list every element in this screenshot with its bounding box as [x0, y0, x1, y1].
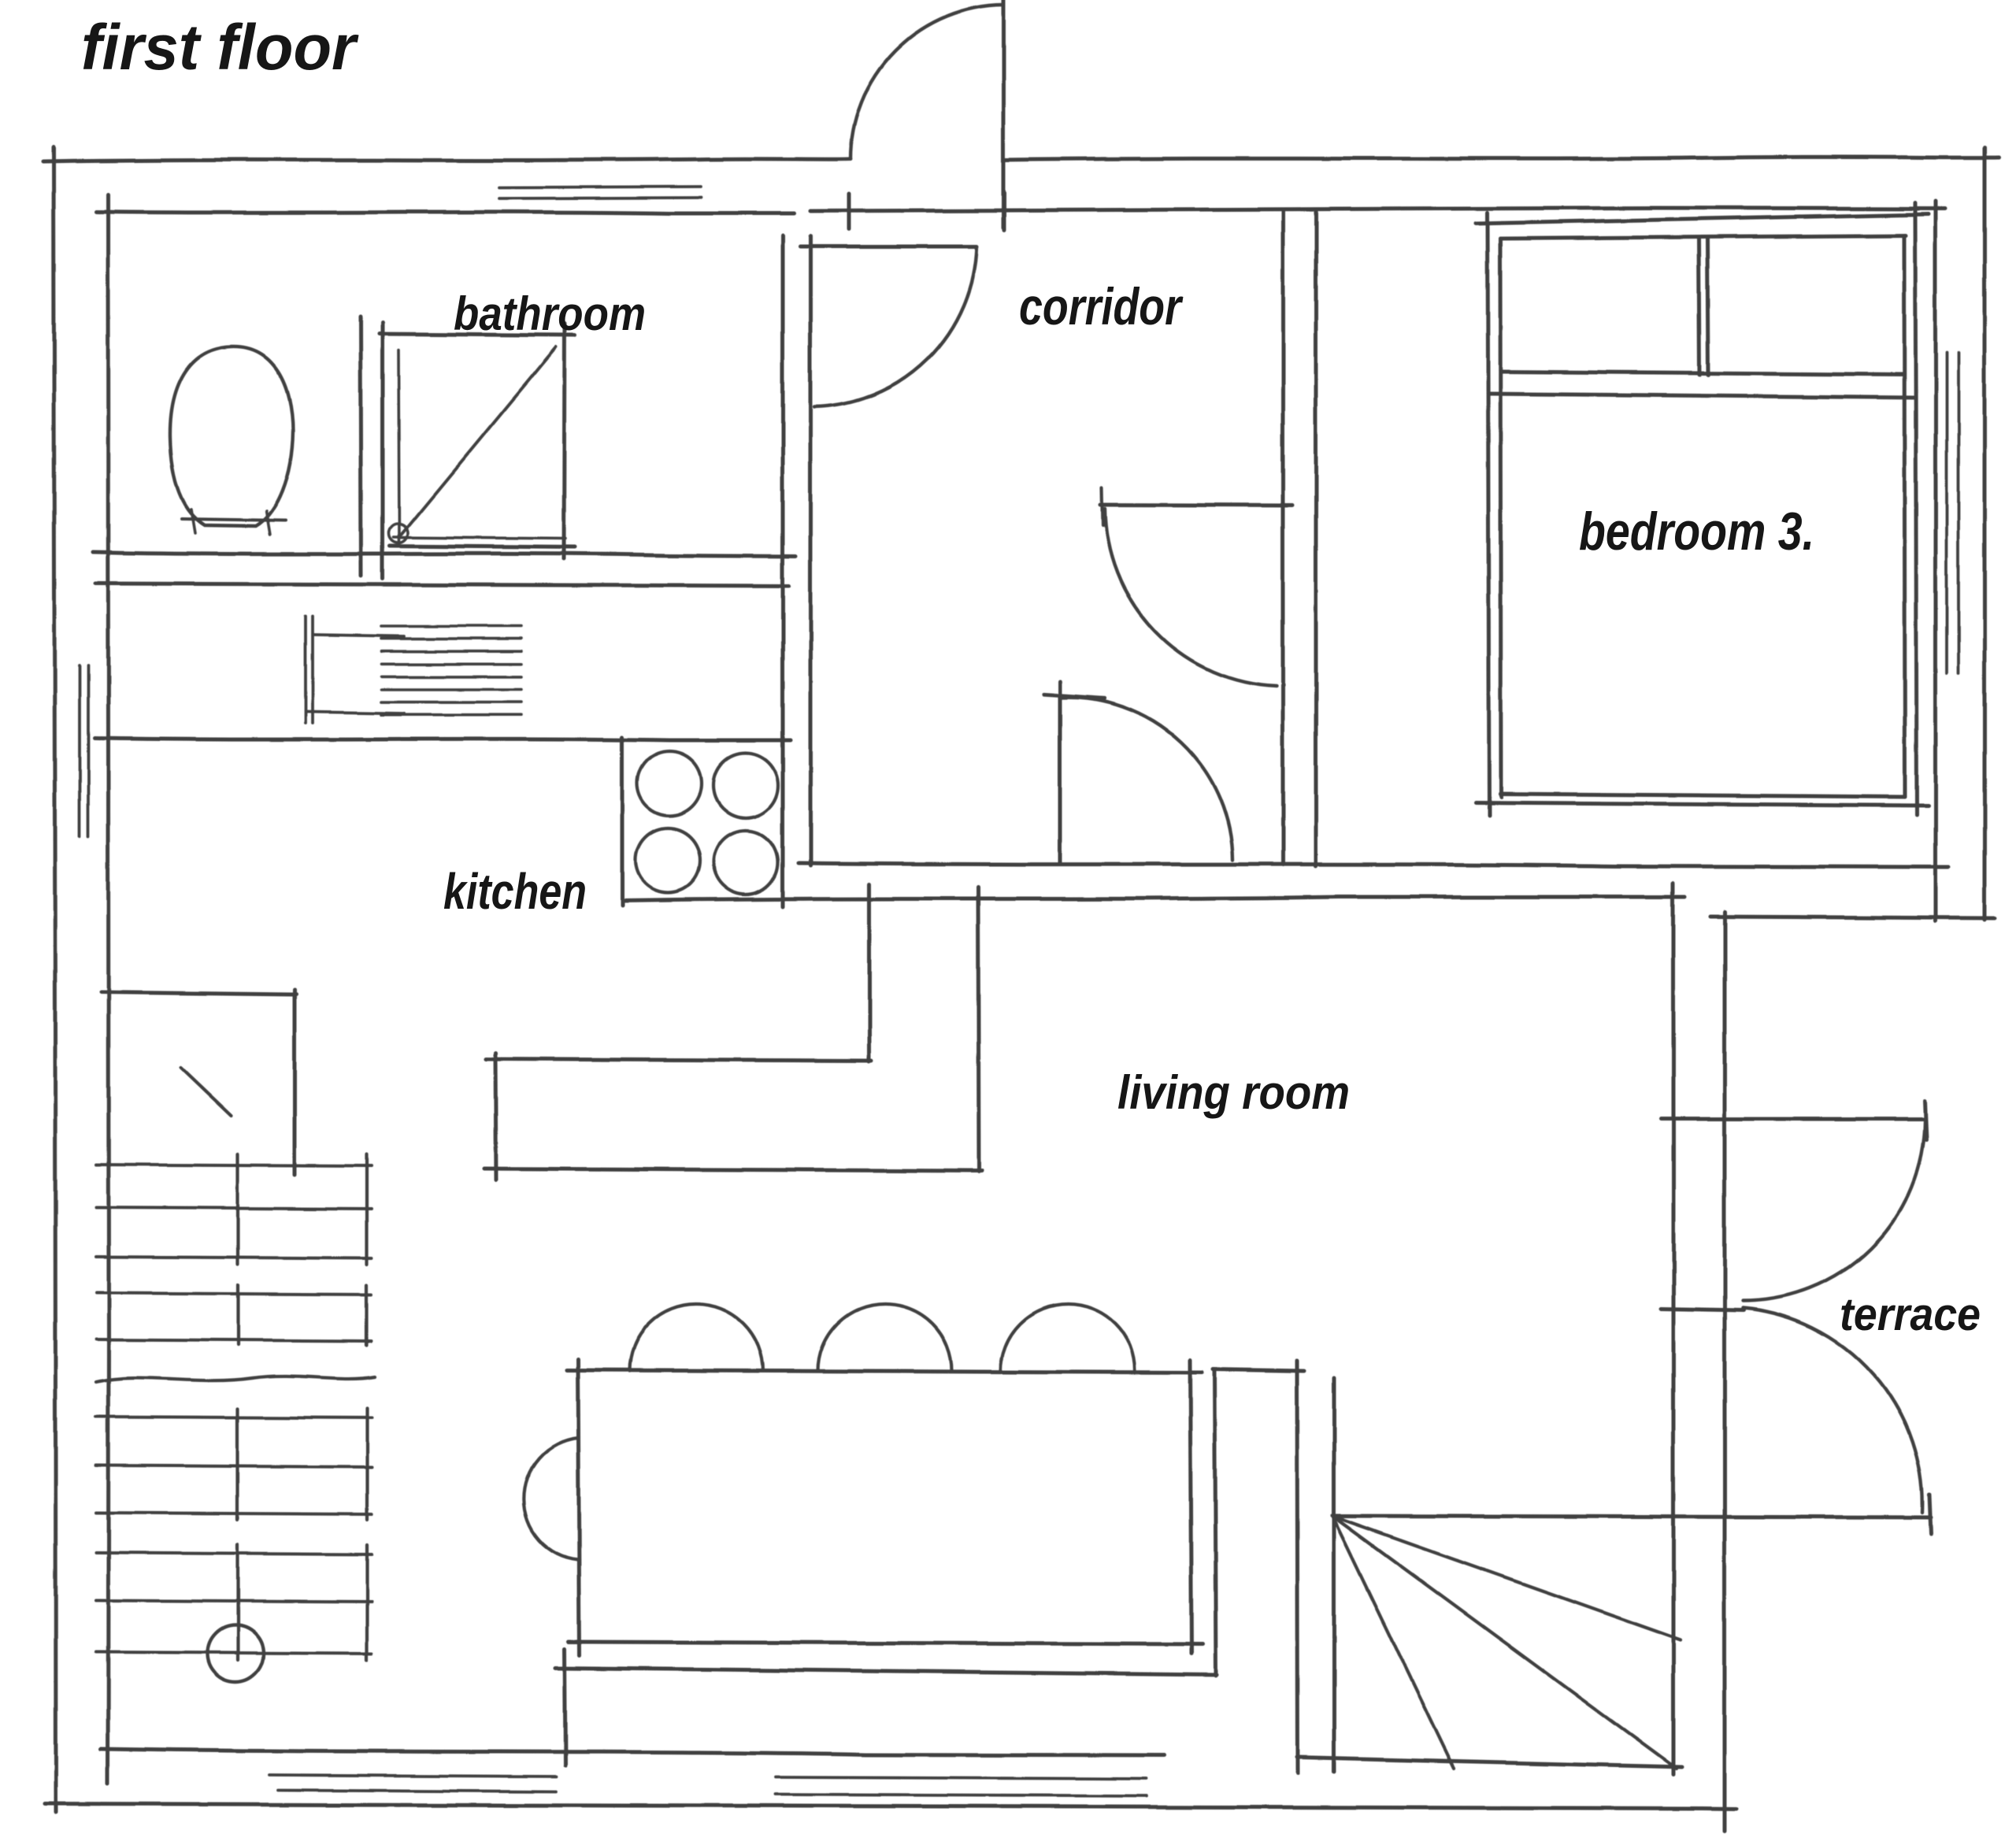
svg-text:bathroom: bathroom [454, 287, 646, 340]
svg-text:corridor: corridor [1019, 277, 1184, 335]
svg-text:terrace: terrace [1840, 1289, 1981, 1340]
svg-text:bedroom 3.: bedroom 3. [1579, 502, 1814, 561]
svg-text:kitchen: kitchen [443, 863, 587, 920]
svg-text:first floor: first floor [81, 12, 359, 83]
svg-text:living room: living room [1117, 1066, 1350, 1119]
